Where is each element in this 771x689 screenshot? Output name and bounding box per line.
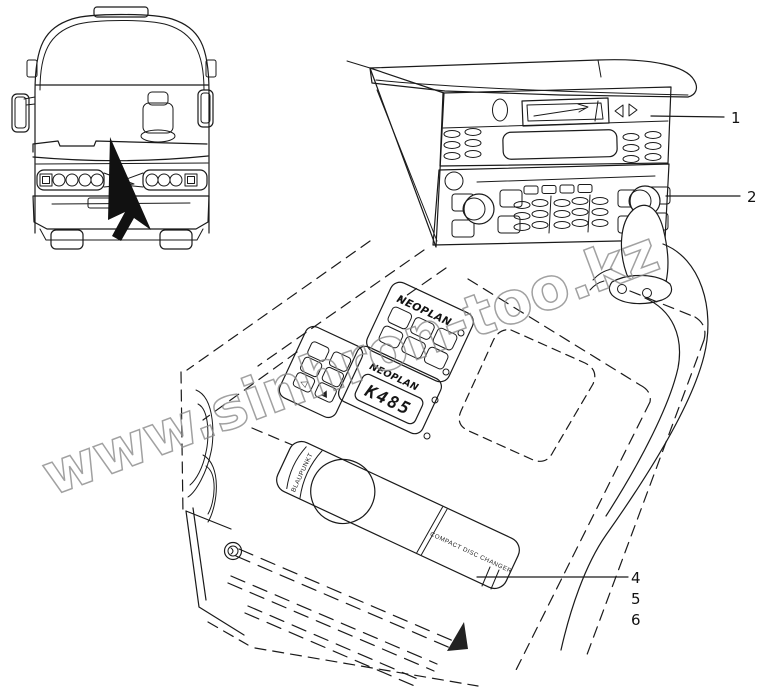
callout-6[interactable]: 6 [631, 611, 641, 629]
lock-cylinder [225, 543, 242, 560]
callout-4[interactable]: 4 [631, 569, 641, 587]
bus-front-view [12, 7, 216, 249]
roof-edge-tick [347, 61, 370, 68]
leader-line-1 [651, 116, 724, 117]
console-side-cheek [370, 68, 444, 247]
diagram-canvas: NEOPLAN ◁ ▲ NEOPLAN K485 [0, 0, 771, 689]
left-knob-group [452, 190, 522, 237]
grille-line [36, 163, 208, 164]
left-mirror-glass [15, 97, 26, 128]
radio1-display [503, 130, 618, 160]
power-button [445, 172, 463, 190]
right-mirror [198, 90, 213, 127]
callout-5[interactable]: 5 [631, 590, 641, 608]
radio1-left-buttons [444, 129, 481, 160]
bus-roof-seam [40, 21, 204, 91]
fast-forward-icon [629, 104, 637, 116]
volume-knob-left [464, 194, 494, 224]
radio-cassette-unit [440, 87, 671, 166]
driver-seat [141, 92, 175, 142]
front-panel-line [33, 156, 208, 161]
roof-panel [370, 60, 696, 97]
preset-buttons [524, 185, 592, 195]
console-front-corner [447, 622, 468, 651]
pointer-arrow-icon [108, 137, 151, 241]
vent-slots [228, 549, 458, 687]
roof-hatch [94, 7, 148, 17]
console-corner [186, 508, 244, 635]
middle-button-rows [514, 195, 608, 233]
console-outer-edge [585, 291, 705, 660]
callout-2[interactable]: 2 [747, 188, 757, 206]
parts-diagram-page: NEOPLAN ◁ ▲ NEOPLAN K485 [0, 0, 771, 689]
radio1-right-buttons [623, 132, 661, 163]
console-side-seam [377, 90, 437, 241]
windshield-lower-edge [33, 141, 207, 152]
eject-button [493, 99, 508, 121]
roof-panel-seam [376, 60, 688, 95]
callout-1[interactable]: 1 [731, 109, 741, 127]
gear-cable-inner [606, 298, 680, 516]
rewind-icon [615, 105, 623, 117]
tuner-slot [477, 176, 655, 182]
